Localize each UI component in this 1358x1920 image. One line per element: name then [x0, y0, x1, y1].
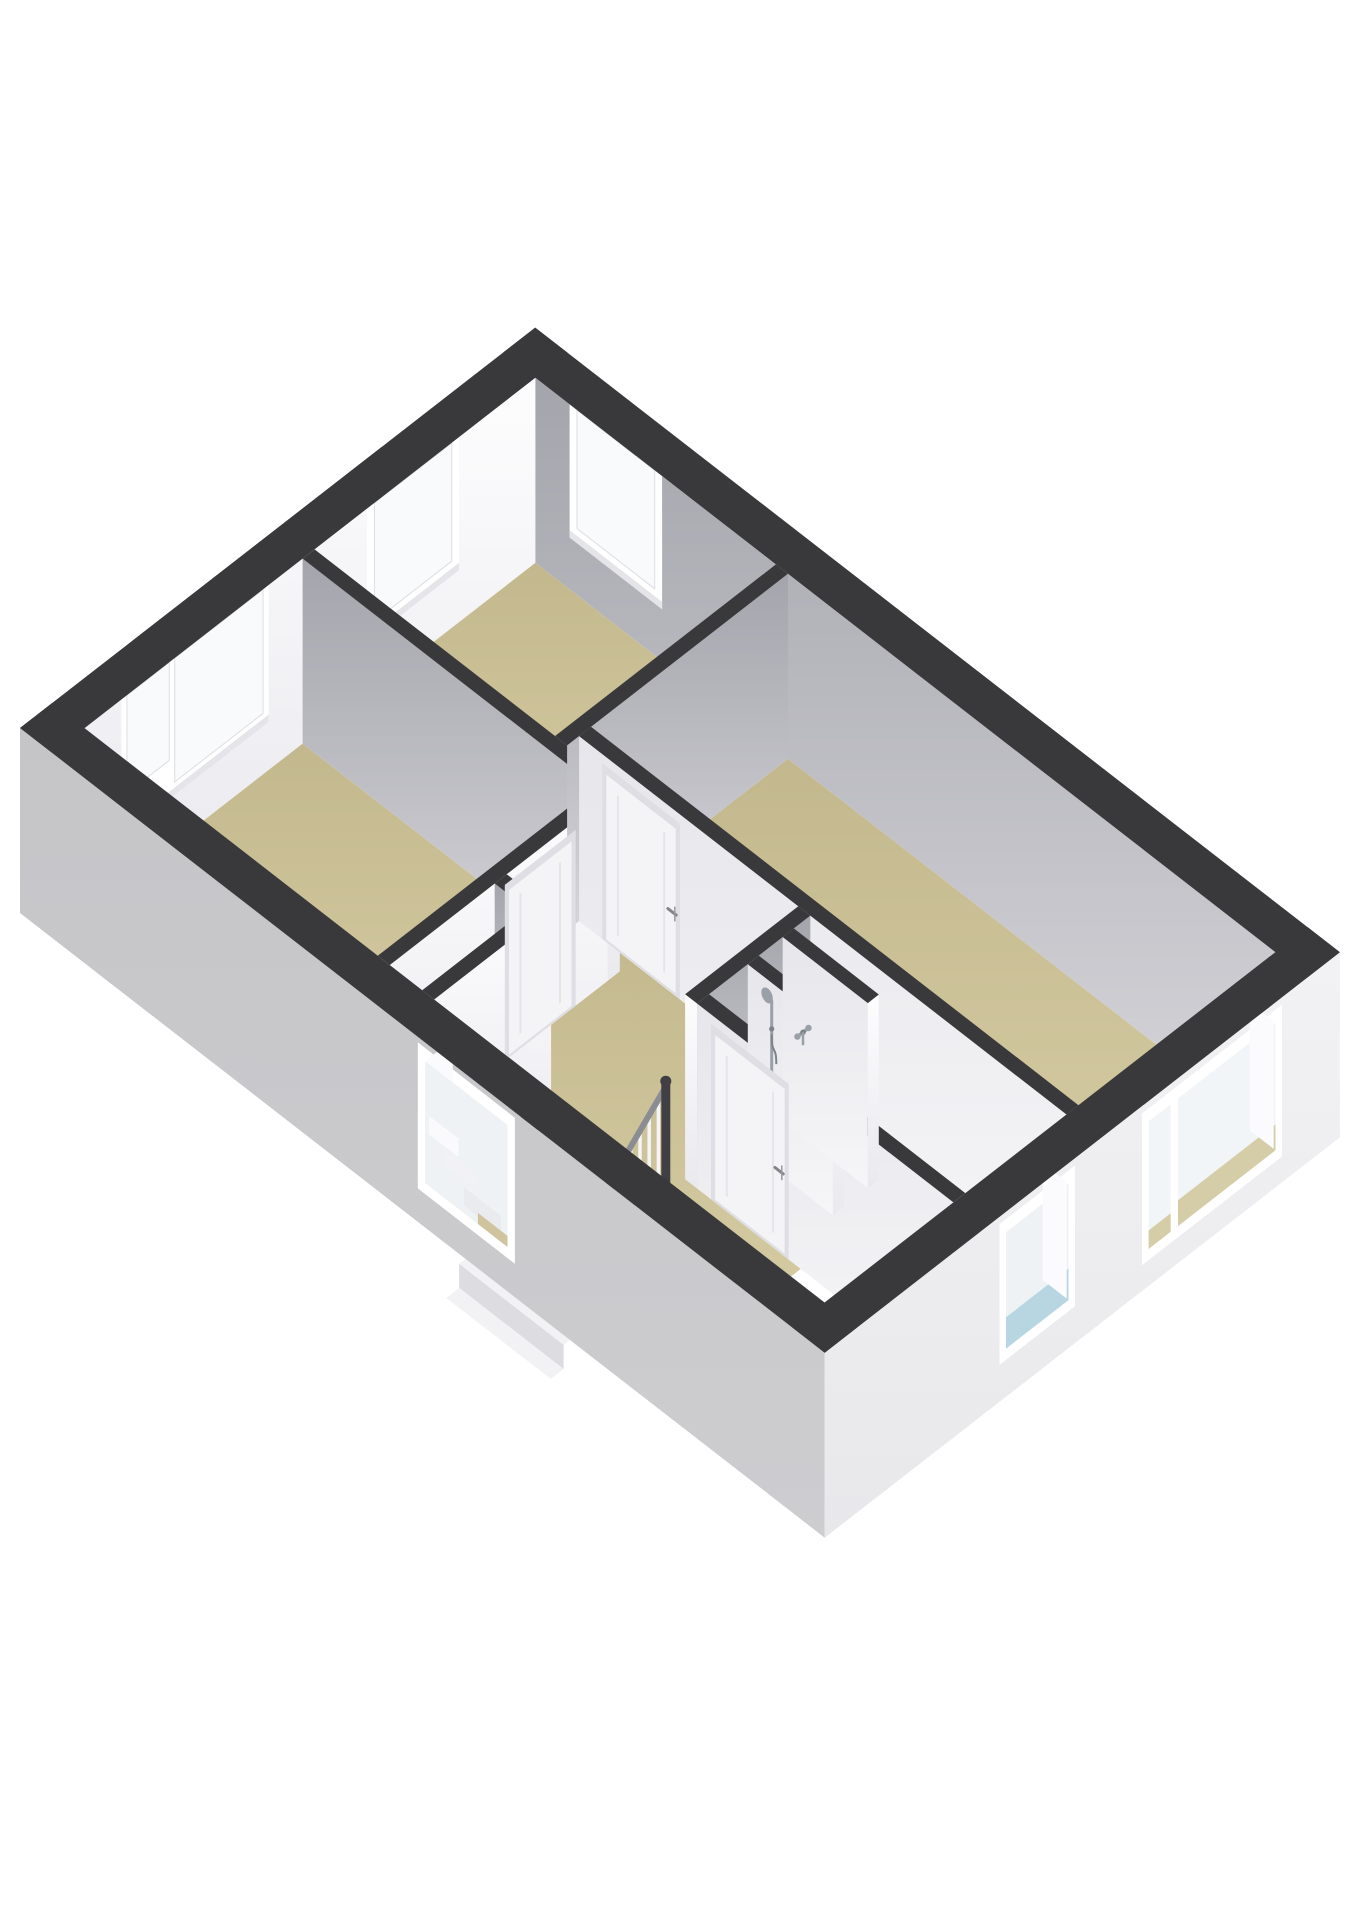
floorplan-3d-render — [0, 0, 1358, 1920]
floorplan-svg — [0, 0, 1358, 1920]
